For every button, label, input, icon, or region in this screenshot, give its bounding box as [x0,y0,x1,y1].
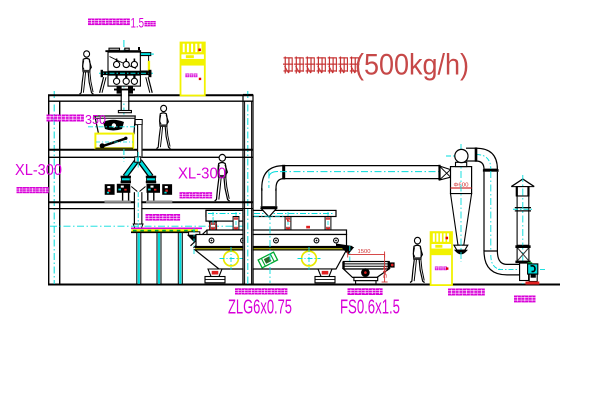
svg-text:XL-300: XL-300 [15,162,62,179]
svg-text:350: 350 [85,113,106,127]
svg-text:545: 545 [383,266,389,278]
svg-text:1.5: 1.5 [131,15,145,31]
svg-text:FS0.6x1.5: FS0.6x1.5 [340,297,400,319]
svg-text:1500: 1500 [358,249,371,255]
svg-text:(500kg/h): (500kg/h) [355,49,469,82]
svg-text:XL-300: XL-300 [178,165,226,182]
svg-text:ZLG6x0.75: ZLG6x0.75 [228,297,292,319]
